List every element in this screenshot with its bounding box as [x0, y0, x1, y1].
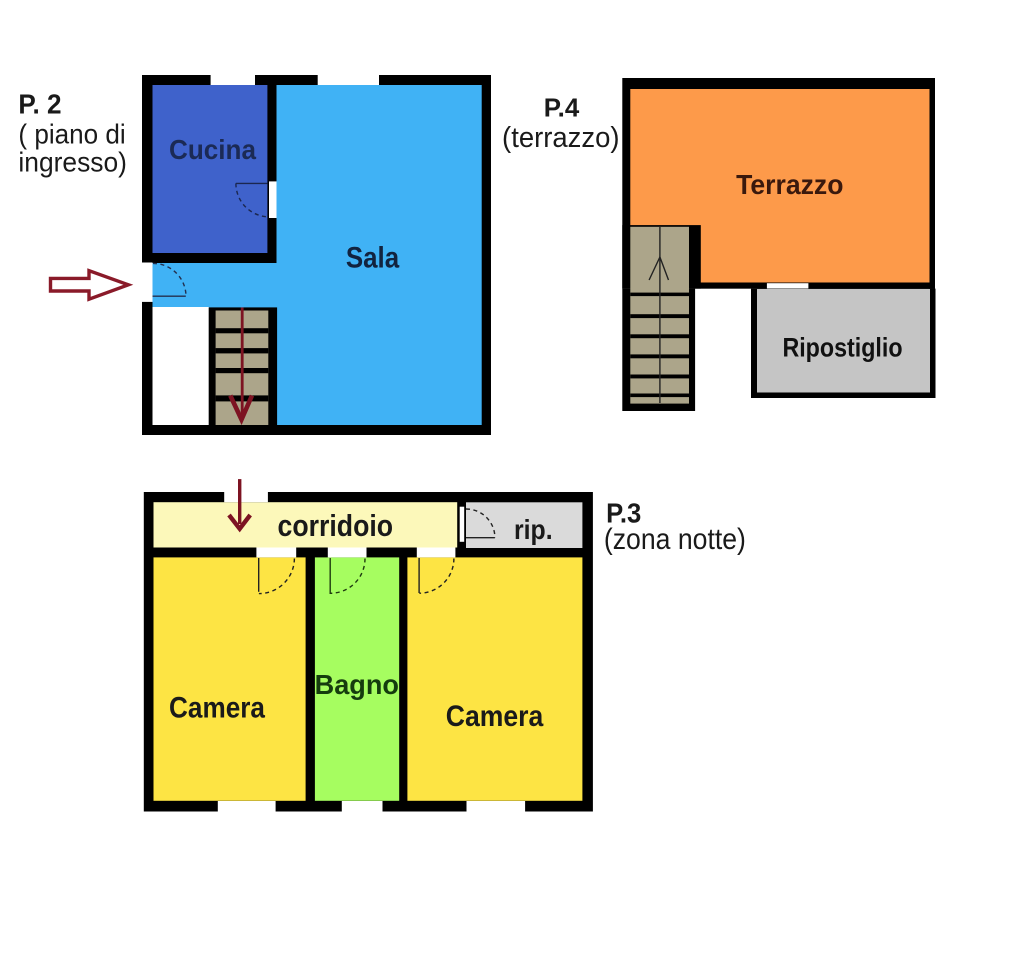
svg-text:Camera: Camera [446, 700, 544, 733]
svg-text:Camera: Camera [169, 691, 265, 724]
svg-text:rip.: rip. [514, 514, 553, 545]
svg-text:(terrazzo): (terrazzo) [502, 122, 620, 154]
svg-text:Bagno: Bagno [315, 669, 399, 700]
svg-text:ingresso): ingresso) [18, 147, 127, 178]
svg-text:Ripostiglio: Ripostiglio [782, 333, 902, 363]
svg-text:( piano di: ( piano di [18, 119, 125, 150]
svg-text:Sala: Sala [346, 242, 400, 275]
svg-text:(zona notte): (zona notte) [604, 523, 746, 556]
svg-text:P. 2: P. 2 [18, 89, 61, 120]
svg-text:Cucina: Cucina [169, 134, 256, 165]
svg-text:Terrazzo: Terrazzo [736, 169, 843, 200]
svg-text:P.4: P.4 [544, 92, 580, 122]
svg-text:corridoio: corridoio [278, 508, 394, 543]
